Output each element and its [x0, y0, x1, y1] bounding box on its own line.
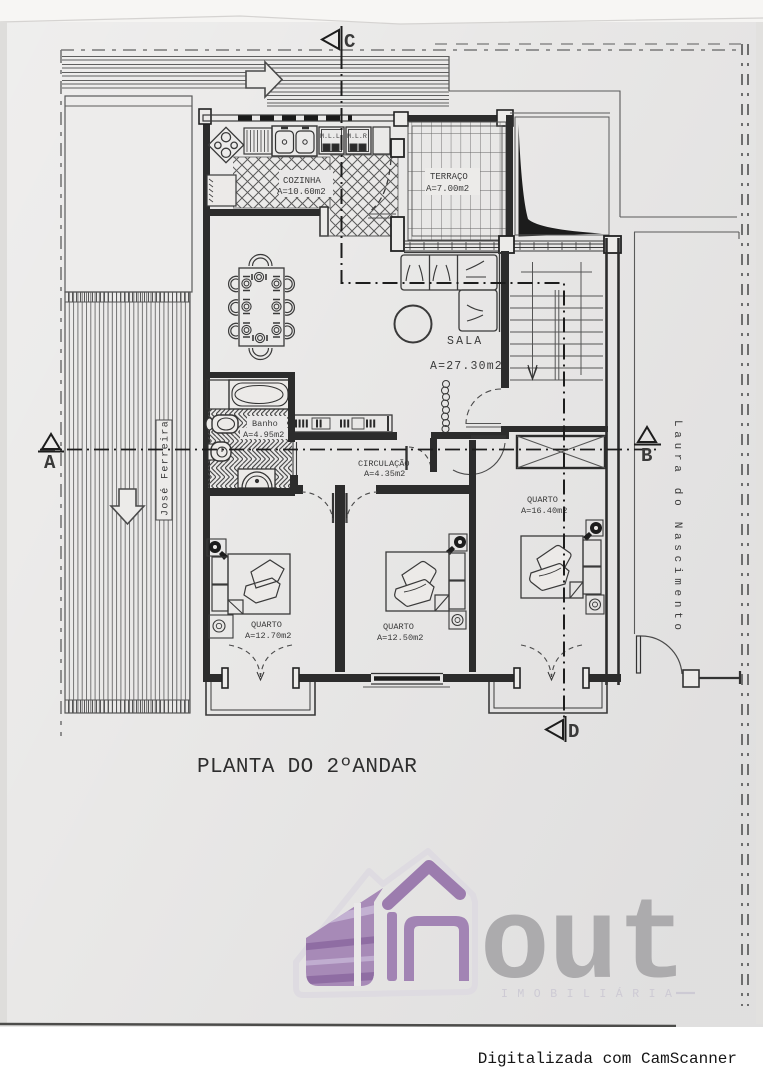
svg-text:C: C: [344, 31, 355, 53]
svg-text:A=12.70m2: A=12.70m2: [245, 631, 291, 641]
svg-text:A=16.40m2: A=16.40m2: [521, 506, 567, 516]
svg-text:M.L.R: M.L.R: [347, 133, 367, 140]
svg-text:QUARTO: QUARTO: [251, 620, 282, 630]
svg-text:QUARTO: QUARTO: [527, 495, 558, 505]
svg-text:A=27.30m2: A=27.30m2: [430, 360, 503, 373]
svg-text:QUARTO: QUARTO: [383, 622, 414, 632]
svg-text:A=4.35m2: A=4.35m2: [364, 469, 405, 479]
svg-text:A=4.95m2: A=4.95m2: [243, 430, 284, 440]
svg-text:Digitalizada com CamScanner: Digitalizada com CamScanner: [478, 1050, 737, 1068]
svg-text:CIRCULAÇÃO: CIRCULAÇÃO: [358, 458, 410, 469]
svg-text:COZINHA: COZINHA: [283, 176, 321, 186]
svg-text:B: B: [641, 445, 652, 467]
svg-text:SALA: SALA: [447, 335, 483, 348]
svg-text:TERRAÇO: TERRAÇO: [430, 172, 468, 182]
svg-text:A: A: [44, 452, 56, 474]
svg-text:D: D: [568, 721, 579, 743]
svg-text:A=10.60m2: A=10.60m2: [277, 187, 326, 197]
svg-text:José Ferreira: José Ferreira: [160, 420, 172, 516]
svg-text:A=7.00m2: A=7.00m2: [426, 184, 469, 194]
svg-text:PLANTA DO 2ºANDAR: PLANTA DO 2ºANDAR: [197, 756, 417, 779]
svg-text:IMOBILIÁRIA: IMOBILIÁRIA: [501, 987, 681, 1001]
svg-text:M.L.L: M.L.L: [320, 133, 340, 140]
svg-text:Banho: Banho: [252, 419, 278, 429]
svg-text:A=12.50m2: A=12.50m2: [377, 633, 423, 643]
svg-text:Laura do Nascimento: Laura do Nascimento: [671, 420, 683, 635]
